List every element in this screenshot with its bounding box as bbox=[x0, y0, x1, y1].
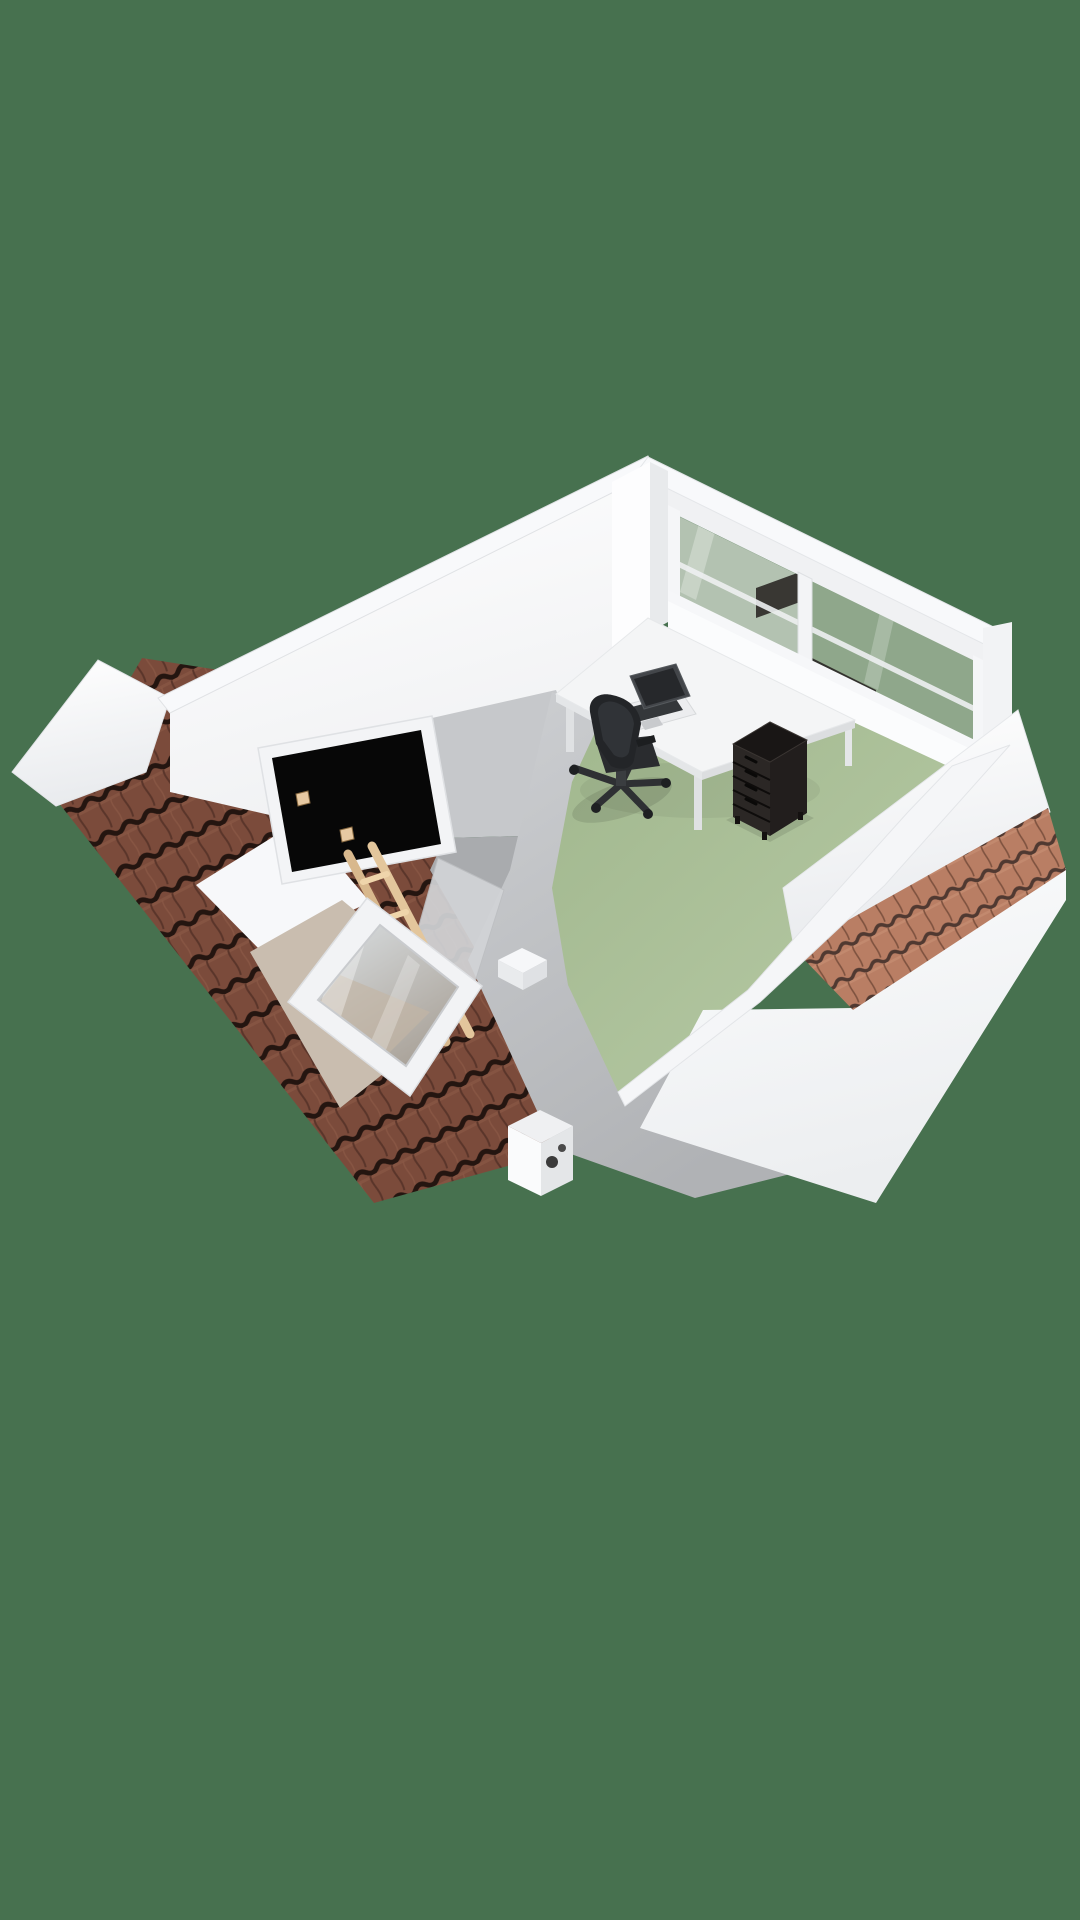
desk-leg bbox=[694, 776, 702, 830]
window-frame-left bbox=[668, 505, 680, 600]
window-mullion bbox=[798, 572, 812, 668]
stair-newel-post-top bbox=[340, 827, 354, 842]
floorplan-3d-render bbox=[0, 0, 1080, 1920]
floorplan-canvas bbox=[0, 0, 1080, 1920]
boiler-unit bbox=[508, 1110, 573, 1196]
boiler-dial bbox=[558, 1144, 566, 1152]
boiler-dial bbox=[546, 1156, 558, 1168]
stair-newel-post-top bbox=[296, 791, 310, 806]
corner-pillar-side bbox=[650, 462, 668, 632]
drawer-unit bbox=[726, 722, 814, 842]
